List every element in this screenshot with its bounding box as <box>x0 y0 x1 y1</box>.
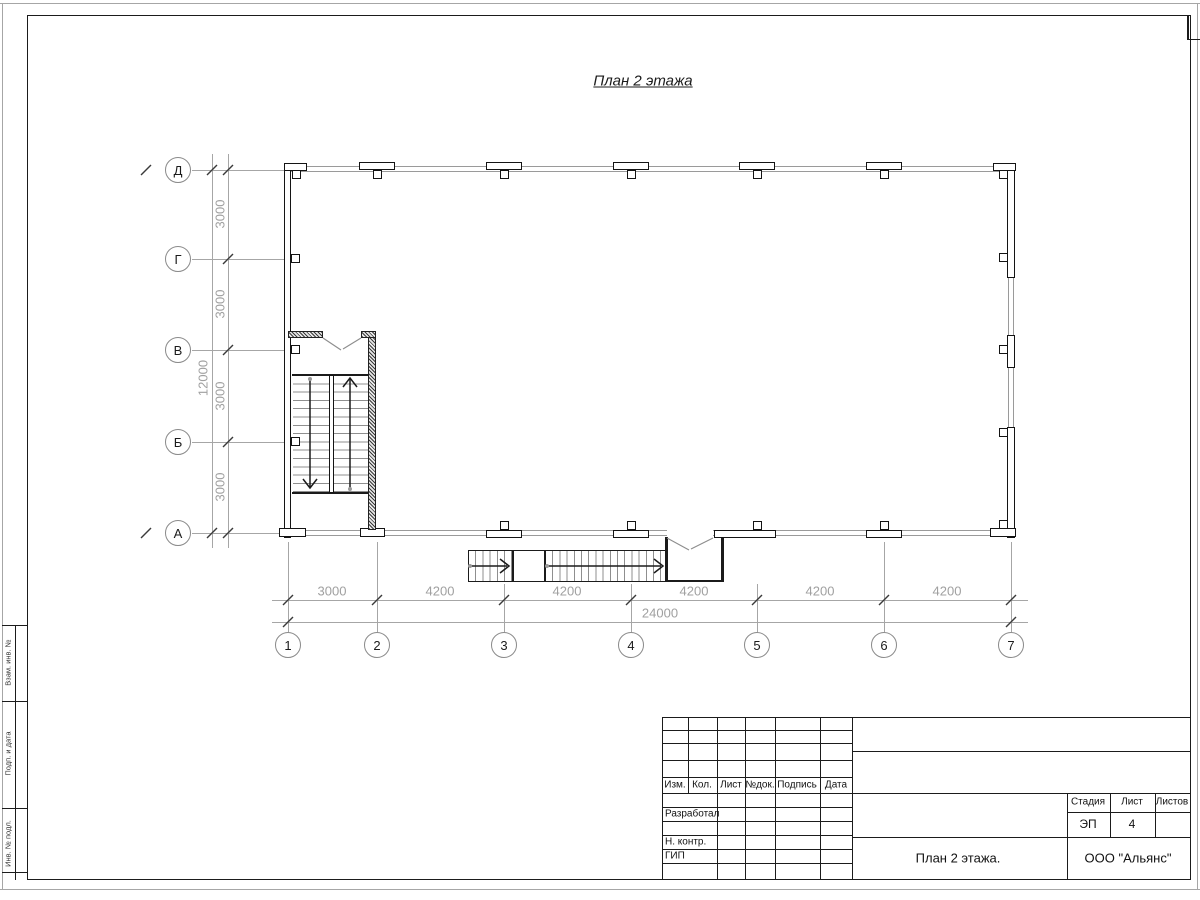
drawing-line <box>662 760 852 761</box>
pilaster-plate <box>866 530 902 538</box>
axis-or-dim-line <box>0 3 1200 4</box>
drawing-line <box>688 717 689 793</box>
side-stamp-cell: Подп. и дата <box>4 720 13 788</box>
axis-bubble-1: 1 <box>275 632 301 658</box>
wall-solid <box>1007 164 1015 278</box>
tb-stage-value: ЭП <box>1079 817 1096 831</box>
axis-or-dim-line <box>192 533 285 534</box>
dim-total-label: 12000 <box>196 360 211 396</box>
axis-or-dim-line <box>1197 3 1198 890</box>
tb-col-ndok: №док. <box>745 780 774 791</box>
tb-col-list: Лист <box>720 780 742 791</box>
stair-flight <box>293 376 329 492</box>
drawing-title: План 2 этажа <box>593 73 692 90</box>
wall-solid <box>279 528 306 537</box>
dim-label: 4200 <box>680 584 709 599</box>
column-stub <box>627 521 636 530</box>
drawing-line <box>2 701 27 702</box>
drawing-line <box>665 580 724 583</box>
side-stamp-cell: Взам. инв. № <box>4 629 13 697</box>
tb-sheet-value: 4 <box>1129 817 1136 831</box>
axis-or-dim-line <box>272 622 1028 623</box>
pilaster-plate <box>714 530 776 538</box>
dim-label: 3000 <box>318 584 347 599</box>
pilaster-plate <box>866 162 902 170</box>
axis-bubble-3: 3 <box>491 632 517 658</box>
drawing-sheet: План 2 этажа Д Г В Б А 1 2 3 4 5 6 7 300… <box>0 0 1200 900</box>
axis-bubble-2: 2 <box>364 632 390 658</box>
drawing-line <box>662 730 852 731</box>
wall-solid <box>284 164 291 538</box>
pilaster-plate <box>613 162 649 170</box>
column-stub <box>753 521 762 530</box>
window-strip <box>1008 368 1014 427</box>
drawing-line <box>1067 812 1191 813</box>
drawing-line <box>721 537 724 582</box>
drawing-line <box>745 717 746 880</box>
column-stub <box>999 253 1008 262</box>
column-stub <box>999 345 1008 354</box>
axis-or-dim-line <box>288 542 289 632</box>
axis-or-dim-line <box>192 259 285 260</box>
column-stub <box>627 170 636 179</box>
drawing-line <box>852 837 1191 838</box>
drawing-line <box>662 743 852 744</box>
tb-row-gip: ГИП <box>665 851 685 862</box>
column-stub <box>753 170 762 179</box>
drawing-line <box>820 717 821 880</box>
drawing-line <box>852 717 853 880</box>
wall-solid <box>990 528 1016 537</box>
dim-total-label: 24000 <box>642 606 678 621</box>
dim-label: 3000 <box>213 382 228 411</box>
axis-bubble-5: 5 <box>744 632 770 658</box>
axis-bubble-4: 4 <box>618 632 644 658</box>
axis-or-dim-line <box>631 584 632 632</box>
drawing-line <box>15 625 16 880</box>
column-stub <box>292 170 301 179</box>
column-stub <box>373 170 382 179</box>
axis-bubble-row-b: Б <box>165 429 191 455</box>
axis-bubble-7: 7 <box>998 632 1024 658</box>
wall-hatched <box>368 337 376 530</box>
axis-or-dim-line <box>228 154 229 548</box>
dim-label: 3000 <box>213 473 228 502</box>
drawing-line <box>662 717 663 880</box>
tb-stage-label: Стадия <box>1071 797 1105 808</box>
axis-or-dim-line <box>504 584 505 632</box>
axis-bubble-row-v: В <box>165 337 191 363</box>
tb-doc-title: План 2 этажа. <box>916 851 1001 866</box>
tb-col-data: Дата <box>825 780 847 791</box>
tb-col-podpis: Подпись <box>777 780 817 791</box>
column-stub <box>999 520 1008 529</box>
axis-bubble-6: 6 <box>871 632 897 658</box>
axis-or-dim-line <box>192 170 285 171</box>
axis-or-dim-line <box>0 889 1200 890</box>
dim-label: 4200 <box>426 584 455 599</box>
axis-bubble-row-a: А <box>165 520 191 546</box>
tb-row-razrabotal: Разработал <box>665 809 719 820</box>
column-stub <box>500 521 509 530</box>
pilaster-plate <box>613 530 649 538</box>
wall-solid <box>1007 427 1015 538</box>
column-stub <box>291 437 300 446</box>
column-stub <box>291 345 300 354</box>
drawing-line <box>662 777 852 778</box>
axis-or-dim-line <box>192 442 285 443</box>
dim-label: 4200 <box>806 584 835 599</box>
tb-col-izm: Изм. <box>664 780 685 791</box>
window-strip <box>1008 277 1014 335</box>
drawing-line <box>2 625 27 626</box>
pilaster-plate <box>739 162 775 170</box>
drawing-line <box>1187 39 1200 41</box>
dim-label: 3000 <box>213 200 228 229</box>
wall-solid <box>1007 335 1015 368</box>
column-stub <box>880 170 889 179</box>
drawing-line <box>852 751 1191 752</box>
column-stub <box>999 428 1008 437</box>
pilaster-plate <box>359 162 395 170</box>
drawing-line <box>775 717 776 880</box>
dim-label: 4200 <box>553 584 582 599</box>
column-stub <box>999 170 1008 179</box>
tb-row-nkontr: Н. контр. <box>665 837 706 848</box>
tb-sheet-label: Лист <box>1121 797 1143 808</box>
tb-sheets-label: Листов <box>1156 797 1189 808</box>
drawing-line <box>1067 793 1068 880</box>
axis-bubble-row-g: Г <box>165 246 191 272</box>
tb-company: ООО "Альянс" <box>1085 851 1172 866</box>
drawing-line <box>717 717 718 880</box>
dim-label: 3000 <box>213 290 228 319</box>
dim-label: 4200 <box>933 584 962 599</box>
pilaster-plate <box>486 162 522 170</box>
column-stub <box>291 254 300 263</box>
tb-col-kol: Кол. <box>692 780 712 791</box>
exterior-stair-outline <box>468 550 667 582</box>
stair-flight <box>334 376 368 492</box>
drawing-line <box>662 717 1191 718</box>
axis-or-dim-line <box>377 542 378 632</box>
axis-bubble-row-d: Д <box>165 157 191 183</box>
axis-or-dim-line <box>884 542 885 632</box>
axis-or-dim-line <box>757 584 758 632</box>
drawing-line <box>662 793 1191 794</box>
wall-hatched <box>288 331 323 338</box>
axis-or-dim-line <box>1011 542 1012 632</box>
axis-or-dim-line <box>192 350 285 351</box>
axis-or-dim-line <box>272 600 1028 601</box>
drawing-line <box>662 849 852 850</box>
pilaster-plate <box>486 530 522 538</box>
drawing-line <box>1110 793 1111 837</box>
side-stamp-cell: Инв. № подл. <box>4 810 13 878</box>
column-stub <box>500 170 509 179</box>
drawing-line <box>1187 15 1189 40</box>
drawing-line <box>662 863 852 864</box>
column-stub <box>880 521 889 530</box>
wall-solid <box>329 375 334 493</box>
drawing-line <box>662 821 852 822</box>
